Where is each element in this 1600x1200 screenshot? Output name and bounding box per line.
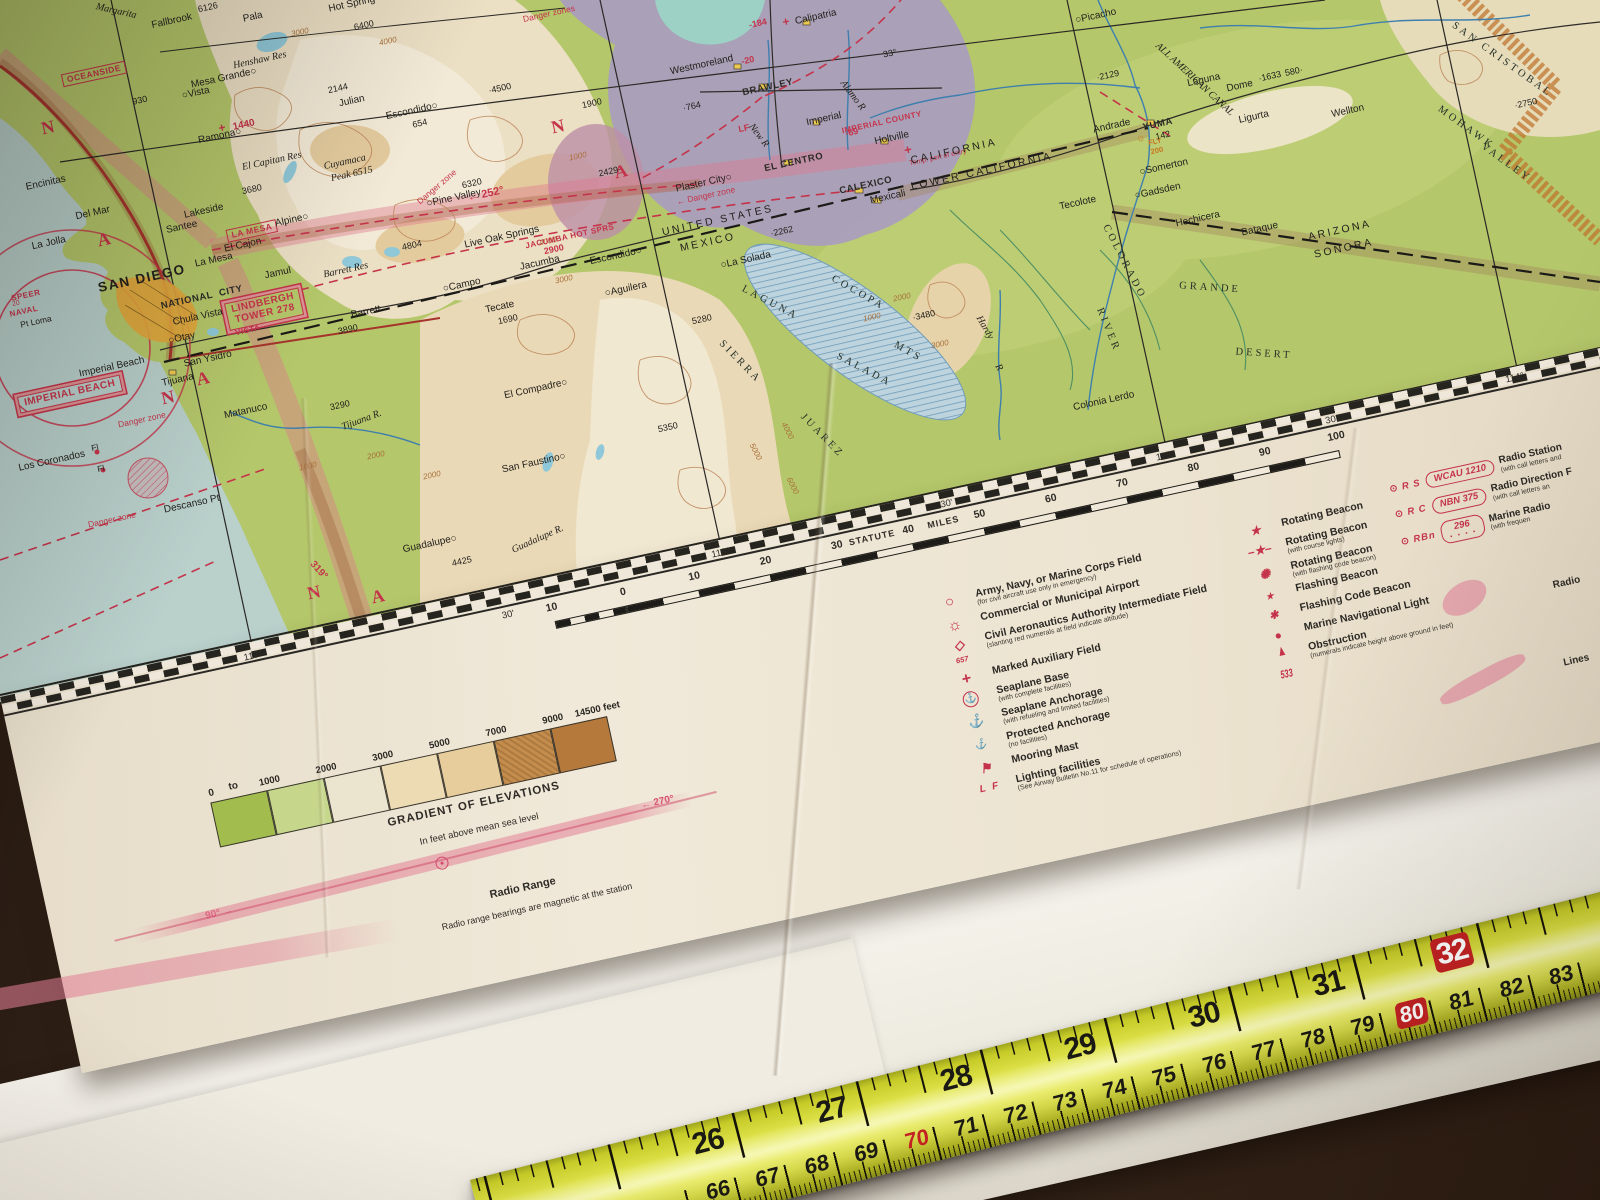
map-label: Hot Spring xyxy=(328,0,376,15)
map-label: 3290 xyxy=(329,399,351,413)
legend-text: Marine Radio (with frequen xyxy=(1488,501,1553,532)
radio-frequency-box: WCAU 1210 xyxy=(1424,459,1495,490)
map-label: 3890 xyxy=(337,323,359,337)
scale-bar-number: 20 xyxy=(759,554,773,568)
scale-bar-number: MILES xyxy=(926,514,960,531)
elevation-color-box: 7000 xyxy=(437,741,503,798)
map-label: Imperial xyxy=(805,111,842,129)
map-label: SIERRA xyxy=(717,338,764,386)
scale-bar-number: 30 xyxy=(830,538,844,552)
map-label: Wellton xyxy=(1331,103,1366,121)
map-label: EL CENTRO xyxy=(764,152,825,175)
map-label: 1900 xyxy=(581,97,603,111)
map-label: San Faustino○ xyxy=(501,452,567,476)
map-label: Chula Vista xyxy=(172,307,224,328)
map-label: Alamo R xyxy=(837,79,867,113)
radio-frequency-box: NBN 375 xyxy=(1431,487,1488,515)
scale-bar-subdivisions xyxy=(555,606,628,629)
legend-symbol-icon: L F xyxy=(971,776,1009,798)
map-label: 5280 xyxy=(691,313,713,327)
map-label: Los Coronados xyxy=(18,450,87,475)
legend-symbol-icon: + xyxy=(947,668,985,690)
legend-symbol-icon: ⚓ xyxy=(956,710,994,732)
map-label: ○Picacho xyxy=(1075,7,1118,26)
elevation-value-label: 9000 xyxy=(541,712,564,727)
scale-bar-number: 0 xyxy=(619,585,627,598)
map-label: ○Aguilera xyxy=(604,280,648,300)
map-label: New R xyxy=(746,122,771,150)
map-label: + xyxy=(217,121,227,135)
map-label: 33° xyxy=(882,48,897,60)
map-label: Andrade xyxy=(1092,118,1131,137)
map-label: IMPERIAL BEACH xyxy=(17,375,123,414)
map-label: Guadalupe R. xyxy=(510,524,565,557)
map-label: El Capitan Res xyxy=(241,150,302,173)
map-label: Westmoreland xyxy=(669,54,734,78)
map-label: DESERT xyxy=(1235,347,1293,362)
map-label: Guadalupe○ xyxy=(402,534,458,556)
map-label: 3680 xyxy=(241,183,263,197)
map-label: Encinitas xyxy=(25,174,67,193)
map-label: -184 xyxy=(748,17,768,30)
photo-of-aeronautical-chart: Margarita Fallbrook Pala OCEANSIDE ○Vist… xyxy=(0,0,1600,1200)
legend-symbol-icon: ★ xyxy=(1236,520,1274,542)
map-label: Jacumba xyxy=(519,254,561,273)
map-label: COLORADO xyxy=(1100,223,1148,301)
legend-symbol-icon: ★ xyxy=(1251,586,1289,608)
map-label: ·764 xyxy=(682,100,702,113)
map-label: COCOPA xyxy=(829,273,886,312)
map-label: Fallbrook xyxy=(151,12,193,31)
scale-bar-number: STATUTE xyxy=(848,528,896,548)
scale-bar-number: 90 xyxy=(1258,445,1272,459)
elevation-color-box: 3000 xyxy=(324,766,390,823)
map-label: Jamul xyxy=(264,266,292,282)
map-label: SALADA xyxy=(835,351,894,389)
map-label: 1440 xyxy=(232,118,256,133)
margin-label: 117° xyxy=(243,649,264,664)
map-label: N xyxy=(306,582,323,604)
map-label: Santee xyxy=(165,219,198,236)
legend-symbol-icon: ⚑ xyxy=(967,757,1005,779)
radio-station-icon: ⊙ R S xyxy=(1388,477,1421,494)
legend-symbol-icon: ✺ xyxy=(1246,563,1284,585)
legend-symbol-icon: ⚓ xyxy=(962,734,1000,756)
map-label: ☼ xyxy=(1135,132,1147,146)
scale-bar-number: 100 xyxy=(1326,429,1346,444)
elevation-value-label: 7000 xyxy=(485,724,508,739)
map-label: CALIFORNIA xyxy=(910,137,998,167)
map-label: ·2129 xyxy=(1096,69,1121,83)
elevation-color-box: 9000 xyxy=(494,728,560,785)
map-label: Fl xyxy=(97,464,106,474)
map-label: 654 xyxy=(412,118,429,131)
map-label: Tecolote xyxy=(1059,195,1098,213)
map-label: 2000 xyxy=(892,292,911,304)
map-label: Descanso Pt xyxy=(163,494,221,517)
radio-station-icon: ⊙ RBn xyxy=(1400,530,1437,548)
map-label: 2144 xyxy=(327,82,349,96)
legend-symbol-icon: ✱ xyxy=(1255,605,1293,627)
map-label: Pala xyxy=(242,11,264,26)
map-label: 2000 xyxy=(366,450,385,462)
margin-label: to xyxy=(228,780,240,793)
map-label: Barrett Res xyxy=(323,261,370,281)
map-label: El Compadre○ xyxy=(503,378,568,402)
map-label: 200 xyxy=(1150,146,1164,157)
map-label: RIVER xyxy=(1094,306,1122,353)
map-label: Danger zone xyxy=(87,510,137,529)
map-label: MEXICO xyxy=(679,231,737,254)
map-label: 6400 xyxy=(353,19,375,33)
legend-symbol-icon: ◇657 xyxy=(940,634,982,671)
map-label: 3000 xyxy=(554,274,573,286)
scale-bar-number: 80 xyxy=(1187,460,1201,474)
elevation-color-box: 14500 feet xyxy=(550,716,616,773)
map-label: A xyxy=(195,368,212,390)
map-label: ·1633 xyxy=(1258,70,1283,84)
map-label: 4425 xyxy=(451,555,473,569)
legend-symbol-icon: ☼ xyxy=(935,614,973,636)
elevation-color-box: 5000 xyxy=(380,753,446,810)
map-label: Matanuco xyxy=(223,402,268,422)
map-label: Colonia Lerdo xyxy=(1072,390,1135,414)
map-label: Tijuana R. xyxy=(341,409,384,434)
map-label: 4000 xyxy=(779,421,795,441)
tape-cm-number: 66 xyxy=(704,1174,731,1200)
map-label: GRANDE xyxy=(1179,280,1241,295)
map-label: Dome xyxy=(1226,79,1254,95)
map-label: 3000 xyxy=(290,27,309,39)
map-label: MTS xyxy=(892,340,924,365)
scale-bar-number: 60 xyxy=(1044,491,1058,505)
map-label: 6000 xyxy=(784,476,800,496)
map-label: Del Mar xyxy=(75,205,112,223)
map-label: ○Otay xyxy=(168,331,197,347)
legend-symbol-icon: ○ xyxy=(930,591,968,613)
map-label: San Ysidro xyxy=(183,350,233,371)
map-label: R xyxy=(992,363,1004,374)
map-label: ○Gadsden xyxy=(1134,182,1182,202)
elevation-value-label: 2000 xyxy=(315,761,338,776)
map-label: 1000 xyxy=(568,151,587,163)
map-label: Danger zones xyxy=(522,4,576,24)
map-label: Alpine○ xyxy=(274,212,309,230)
radio-station-icon: ⊙ R C xyxy=(1394,503,1428,521)
map-label: 1000 xyxy=(862,312,881,324)
elevation-value-label: 5000 xyxy=(428,736,451,751)
map-label: Mesa Grande○ xyxy=(190,67,257,92)
map-label: 580· xyxy=(1284,65,1304,78)
scale-bar-number: 10 xyxy=(687,569,701,583)
map-label: A xyxy=(96,229,113,251)
map-label: La Jolla xyxy=(31,235,67,253)
map-label: 1000 xyxy=(298,461,317,473)
scale-bar-number: 70 xyxy=(1115,476,1129,490)
elevation-value-label: 14500 feet xyxy=(574,699,621,720)
map-label: Fl xyxy=(91,443,100,453)
map-label: LAGUNA xyxy=(740,283,800,322)
map-label: N xyxy=(550,116,567,138)
map-label: OCEANSIDE xyxy=(61,61,127,88)
map-label: 319° xyxy=(307,560,329,583)
map-label: Margarita xyxy=(95,2,138,22)
map-label: 6126 xyxy=(197,1,219,15)
map-label: -69 xyxy=(845,127,860,139)
map-label: Bataque xyxy=(1241,221,1280,239)
map-label: Escondido○ xyxy=(589,246,643,268)
map-label: ·3480 xyxy=(912,309,937,323)
map-label: N xyxy=(40,117,57,139)
map-label: ·2750 xyxy=(1514,97,1539,111)
map-label: Calipatria xyxy=(794,8,838,28)
elevation-value-label: 1000 xyxy=(258,773,281,788)
map-label: Julian xyxy=(338,94,366,110)
map-label: 3000 xyxy=(930,339,949,351)
margin-label: 116° xyxy=(710,546,731,561)
map-label: ○La Solada xyxy=(720,250,772,271)
map-label: JUAREZ xyxy=(798,412,846,461)
legend-symbol-icon: –★– xyxy=(1241,540,1279,562)
margin-label: 30' xyxy=(501,608,515,621)
map-label: ○Somerton xyxy=(1139,157,1190,178)
map-label: A xyxy=(370,586,387,608)
map-label: BRAWLEY xyxy=(742,77,795,98)
map-label: 4000 xyxy=(378,36,397,48)
map-label: SAN DIEGO xyxy=(97,262,187,295)
map-label: -20 xyxy=(741,55,756,67)
map-label: ·4500 xyxy=(488,82,513,96)
elevation-color-box: 2000 xyxy=(267,778,333,835)
map-label: VALLEY xyxy=(1479,141,1533,184)
map-label: 5350 xyxy=(657,421,679,435)
map-label: Pt Loma xyxy=(20,314,53,330)
margin-label: 115° xyxy=(1155,449,1176,464)
scale-bar-number: 10 xyxy=(545,600,559,614)
map-label: Barrett xyxy=(350,305,382,322)
map-label: Ligurta xyxy=(1238,109,1270,126)
scale-bar-number: 40 xyxy=(901,523,915,537)
radio-legend-extra-label: Lines xyxy=(1562,652,1590,668)
map-label: 1690 xyxy=(497,313,519,327)
legend-symbol-icon: ⚓ xyxy=(951,687,990,710)
elevation-value-label: 3000 xyxy=(371,749,394,764)
margin-label: 0 xyxy=(207,787,215,799)
map-label: 5000 xyxy=(747,442,763,462)
map-label: Hardy xyxy=(973,314,995,341)
map-label: 4804 xyxy=(401,239,423,253)
map-label: Hechicera xyxy=(1175,210,1221,230)
map-label: + xyxy=(781,15,791,29)
map-label: 2000 xyxy=(422,470,441,482)
map-label: Mexicali xyxy=(869,189,907,207)
pink-range-streak xyxy=(1437,649,1529,709)
map-label: La Mesa xyxy=(194,252,234,271)
elevation-color-box: 1000 xyxy=(210,790,276,847)
map-label: N xyxy=(160,387,177,409)
map-label: Danger zone xyxy=(117,410,167,429)
map-label: ○Campo xyxy=(442,277,482,296)
map-label: 930 xyxy=(132,95,149,108)
radio-frequency-box: 296▪ ▪ ▪ ▪ xyxy=(1439,514,1486,546)
map-label: SAN CRISTOBAL xyxy=(1450,20,1555,100)
scale-bar-number: 50 xyxy=(973,507,987,521)
map-label: ·2262 xyxy=(770,225,795,239)
radio-range-band-corner xyxy=(0,919,400,1015)
